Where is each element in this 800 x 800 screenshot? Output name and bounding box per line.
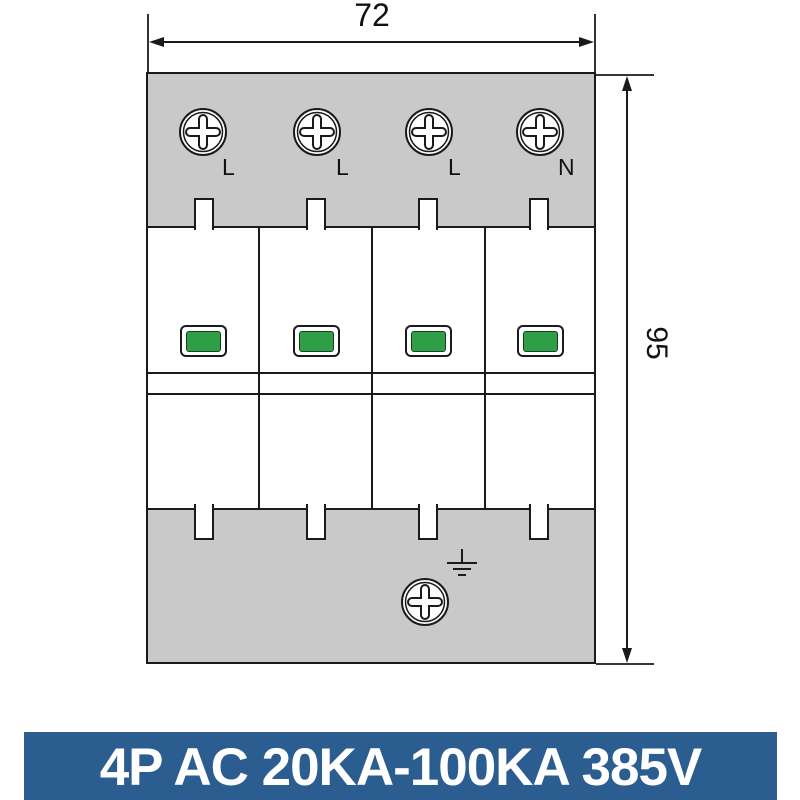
terminal-slot — [529, 198, 549, 230]
terminal-screw-icon — [177, 106, 229, 158]
earth-ground-icon — [445, 546, 479, 580]
terminal-slot — [529, 504, 549, 540]
terminal-screw-icon — [291, 106, 343, 158]
terminal-label: L — [222, 154, 235, 180]
module-divider — [371, 228, 373, 508]
product-spec-text: 4P AC 20KA-100KA 385V — [100, 735, 702, 798]
module-seam-line — [148, 372, 594, 374]
module-divider — [484, 228, 486, 508]
terminal-label: N — [558, 154, 575, 180]
product-spec-banner: 4P AC 20KA-100KA 385V — [24, 732, 777, 800]
bottom-terminal-cover — [148, 508, 594, 662]
status-indicator-window — [517, 325, 564, 357]
terminal-slot — [194, 504, 214, 540]
status-indicator-window — [180, 325, 227, 357]
width-dimension-arrow — [140, 8, 665, 78]
terminal-label: L — [336, 154, 349, 180]
spd-technical-drawing: 72 95 — [0, 0, 800, 800]
status-indicator-window — [293, 325, 340, 357]
status-indicator-green — [523, 331, 558, 352]
terminal-slot — [194, 198, 214, 230]
terminal-slot — [418, 504, 438, 540]
status-indicator-green — [186, 331, 221, 352]
terminal-screw-icon — [403, 106, 455, 158]
terminal-slot — [418, 198, 438, 230]
terminal-slot — [306, 198, 326, 230]
status-indicator-window — [405, 325, 452, 357]
height-dimension-arrow — [594, 70, 666, 670]
terminal-screw-icon — [514, 106, 566, 158]
status-indicator-green — [411, 331, 446, 352]
terminal-label: L — [448, 154, 461, 180]
module-divider — [258, 228, 260, 508]
ground-screw-icon — [399, 576, 451, 628]
module-seam-line — [148, 393, 594, 395]
status-indicator-green — [299, 331, 334, 352]
spd-device-front-view: L L L N — [146, 72, 596, 664]
terminal-slot — [306, 504, 326, 540]
